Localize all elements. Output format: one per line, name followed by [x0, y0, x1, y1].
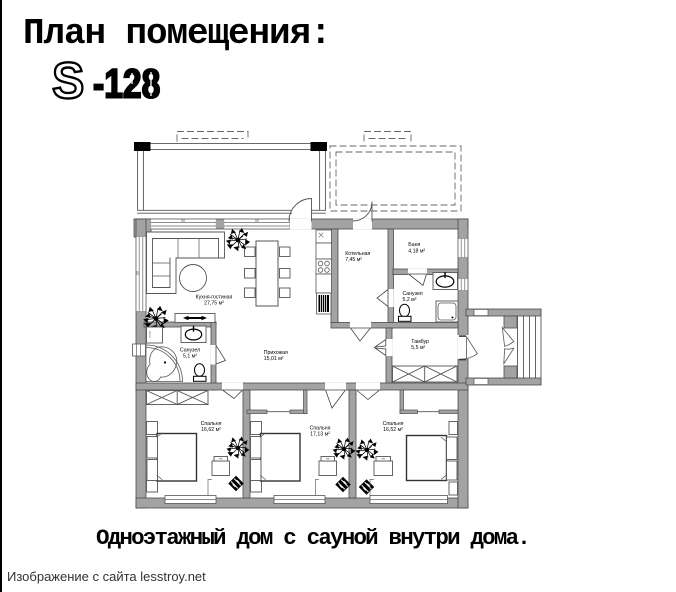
svg-text:5,5 м²: 5,5 м² — [411, 345, 425, 351]
svg-text:16,62 м²: 16,62 м² — [201, 427, 221, 433]
svg-text:Спальня: Спальня — [383, 421, 404, 427]
svg-text:27,75 м²: 27,75 м² — [204, 300, 224, 306]
svg-text:4,18 м²: 4,18 м² — [408, 248, 425, 254]
svg-text:Спальня: Спальня — [310, 425, 331, 431]
svg-text:стм: стм — [147, 331, 152, 338]
svg-text:Баня: Баня — [408, 242, 420, 248]
svg-text:Спальня: Спальня — [201, 421, 222, 427]
svg-text:16,52 м²: 16,52 м² — [383, 427, 403, 433]
svg-text:15,01 м²: 15,01 м² — [264, 356, 284, 362]
svg-text:5,1 м²: 5,1 м² — [183, 354, 197, 360]
svg-text:5,2 м²: 5,2 м² — [403, 297, 417, 303]
svg-text:17,13 м²: 17,13 м² — [310, 431, 330, 437]
svg-text:7,45 м²: 7,45 м² — [345, 257, 362, 263]
